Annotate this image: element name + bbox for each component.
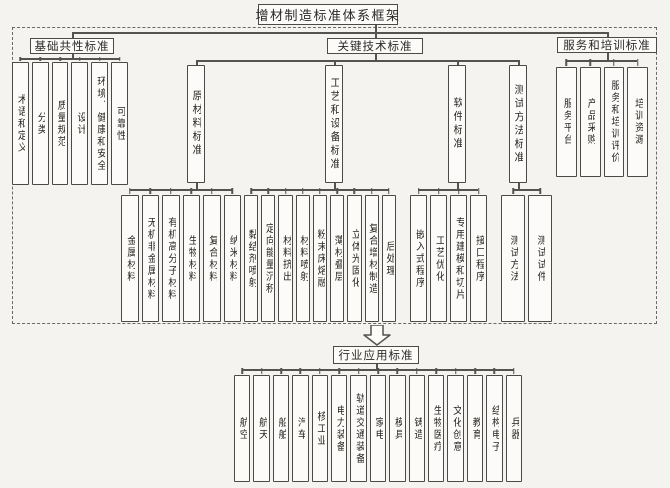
node-label: 术语和定义 xyxy=(15,94,25,154)
connector-line xyxy=(607,53,609,60)
node-label: 船舶 xyxy=(276,417,286,441)
process-item-0: 黏结剂喷射 xyxy=(244,195,258,322)
node-label: 文化创意 xyxy=(451,405,461,453)
process-item-6: 立体光固化 xyxy=(347,195,361,322)
industry-item-3: 汽车 xyxy=(292,375,308,482)
connector-line xyxy=(72,32,607,34)
test-item-0: 测试方法 xyxy=(501,195,525,322)
industry-item-5: 电力装备 xyxy=(331,375,347,482)
node-label: 材料喷射 xyxy=(298,235,308,283)
connector-line xyxy=(20,58,120,60)
node-label: 培训资源 xyxy=(633,98,643,146)
raw-material-item-0: 金属材料 xyxy=(121,195,139,322)
node-label: 教育 xyxy=(470,417,480,441)
node-label: 有机高分子材料 xyxy=(166,217,176,301)
service-training-standards-header: 服务和培训标准 xyxy=(557,37,657,53)
raw-materials-standard-box: 原材料标准 xyxy=(187,65,205,183)
software-item-1: 工艺优化 xyxy=(430,195,447,322)
node-label: 金属材料 xyxy=(125,235,135,283)
industry-item-13: 结构电子 xyxy=(486,375,502,482)
connector-line xyxy=(196,60,518,62)
industry-item-11: 文化创意 xyxy=(447,375,463,482)
software-item-2: 专用建模和切片 xyxy=(450,195,467,322)
down-arrow-icon xyxy=(360,325,394,346)
diagram-canvas: 增材制造标准体系框架 基础共性标准 关键技术标准 服务和培训标准 术语和定义分类… xyxy=(0,0,670,488)
industry-item-1: 航天 xyxy=(253,375,269,482)
software-standard-box: 软件标准 xyxy=(448,65,466,183)
raw-material-item-3: 生物材料 xyxy=(183,195,201,322)
node-label: 铸造 xyxy=(412,417,422,441)
connector-line xyxy=(566,60,637,62)
test-item-1: 测试试件 xyxy=(528,195,552,322)
node-label: 航空 xyxy=(237,417,247,441)
node-label: 测试试件 xyxy=(535,235,545,283)
node-label: 立体光固化 xyxy=(349,229,359,289)
node-label: 轨道交通装备 xyxy=(354,393,364,465)
industry-item-14: 兵器 xyxy=(506,375,522,482)
node-label: 服务平台 xyxy=(561,98,571,146)
node-label: 汽车 xyxy=(295,417,305,441)
node-label: 软件标准 xyxy=(452,97,463,151)
industry-item-6: 轨道交通装备 xyxy=(350,375,366,482)
node-label: 测试方法 xyxy=(508,235,518,283)
node-label: 嵌入式程序 xyxy=(414,229,424,289)
process-item-8: 后处理 xyxy=(382,195,396,322)
node-label: 无机非金属材料 xyxy=(145,217,155,301)
process-item-2: 材料挤出 xyxy=(278,195,292,322)
node-label: 设计 xyxy=(75,112,85,136)
connector-line xyxy=(513,189,540,191)
basic-common-standards-header: 基础共性标准 xyxy=(30,38,114,54)
node-label: 专用建模和切片 xyxy=(454,217,464,301)
process-item-3: 材料喷射 xyxy=(296,195,310,322)
node-label: 质量规范 xyxy=(55,100,65,148)
industry-application-standards-header: 行业应用标准 xyxy=(333,346,419,364)
node-label: 航天 xyxy=(257,417,267,441)
industry-item-7: 家电 xyxy=(370,375,386,482)
process-equipment-standard-box: 工艺和设备标准 xyxy=(325,65,343,183)
basic-standards-group: 术语和定义分类质量规范设计环境、健康和安全可靠性 xyxy=(12,62,128,185)
node-label: 后处理 xyxy=(384,241,394,277)
test-method-standard-box: 测试方法标准 xyxy=(509,65,527,183)
industry-items-group: 航空航天船舶汽车核工业电力装备轨道交通装备家电模具铸造生物医疗文化创意教育结构电… xyxy=(234,375,522,482)
process-item-5: 薄材叠层 xyxy=(330,195,344,322)
basic-item-2: 质量规范 xyxy=(52,62,69,185)
process-item-7: 复合增材制造 xyxy=(365,195,379,322)
software-item-3: 接口程序 xyxy=(470,195,487,322)
software-items-group: 嵌入式程序工艺优化专用建模和切片接口程序 xyxy=(410,195,487,322)
node-label: 定向能量沉积 xyxy=(263,223,273,295)
industry-item-4: 核工业 xyxy=(312,375,328,482)
industry-item-12: 教育 xyxy=(467,375,483,482)
node-label: 工艺优化 xyxy=(434,235,444,283)
raw-material-item-2: 有机高分子材料 xyxy=(162,195,180,322)
raw-material-item-1: 无机非金属材料 xyxy=(142,195,160,322)
node-label: 分类 xyxy=(35,112,45,136)
raw-material-item-5: 纳米材料 xyxy=(224,195,242,322)
service-item-0: 服务平台 xyxy=(556,67,577,177)
service-item-1: 产品采购 xyxy=(580,67,601,177)
basic-item-3: 设计 xyxy=(71,62,88,185)
node-label: 环境、健康和安全 xyxy=(95,76,105,172)
basic-item-0: 术语和定义 xyxy=(12,62,29,185)
node-label: 材料挤出 xyxy=(281,235,291,283)
basic-item-1: 分类 xyxy=(32,62,49,185)
node-label: 生物材料 xyxy=(186,235,196,283)
node-label: 电力装备 xyxy=(334,405,344,453)
node-label: 兵器 xyxy=(509,417,519,441)
node-label: 测试方法标准 xyxy=(513,84,524,165)
service-item-3: 培训资源 xyxy=(627,67,648,177)
basic-item-5: 可靠性 xyxy=(111,62,128,185)
connector-line xyxy=(418,189,478,191)
node-label: 复合材料 xyxy=(207,235,217,283)
node-label: 结构电子 xyxy=(489,405,499,453)
basic-item-4: 环境、健康和安全 xyxy=(91,62,108,185)
industry-item-2: 船舶 xyxy=(273,375,289,482)
software-item-0: 嵌入式程序 xyxy=(410,195,427,322)
service-items-group: 服务平台产品采购服务和培训评价培训资源 xyxy=(556,67,648,177)
process-items-group: 黏结剂喷射定向能量沉积材料挤出材料喷射粉末床熔融薄材叠层立体光固化复合增材制造后… xyxy=(244,195,396,322)
raw-material-item-4: 复合材料 xyxy=(203,195,221,322)
industry-item-8: 模具 xyxy=(389,375,405,482)
node-label: 黏结剂喷射 xyxy=(246,229,256,289)
node-label: 模具 xyxy=(392,417,402,441)
node-label: 原材料标准 xyxy=(191,90,202,158)
node-label: 工艺和设备标准 xyxy=(329,77,340,172)
raw-material-items-group: 金属材料无机非金属材料有机高分子材料生物材料复合材料纳米材料 xyxy=(121,195,241,322)
node-label: 核工业 xyxy=(315,411,325,447)
node-label: 复合增材制造 xyxy=(367,223,377,295)
process-item-4: 粉末床熔融 xyxy=(313,195,327,322)
node-label: 接口程序 xyxy=(474,235,484,283)
node-label: 粉末床熔融 xyxy=(315,229,325,289)
root-title-box: 增材制造标准体系框架 xyxy=(258,4,398,25)
process-item-1: 定向能量沉积 xyxy=(261,195,275,322)
industry-item-10: 生物医疗 xyxy=(428,375,444,482)
connector-line xyxy=(130,189,232,191)
node-label: 生物医疗 xyxy=(431,405,441,453)
node-label: 服务和培训评价 xyxy=(609,80,619,164)
industry-item-0: 航空 xyxy=(234,375,250,482)
node-label: 家电 xyxy=(373,417,383,441)
node-label: 纳米材料 xyxy=(227,235,237,283)
test-items-group: 测试方法测试试件 xyxy=(501,195,552,322)
node-label: 产品采购 xyxy=(585,98,595,146)
node-label: 薄材叠层 xyxy=(332,235,342,283)
industry-item-9: 铸造 xyxy=(409,375,425,482)
service-item-2: 服务和培训评价 xyxy=(604,67,625,177)
node-label: 可靠性 xyxy=(115,106,125,142)
key-technology-standards-header: 关键技术标准 xyxy=(327,38,423,54)
